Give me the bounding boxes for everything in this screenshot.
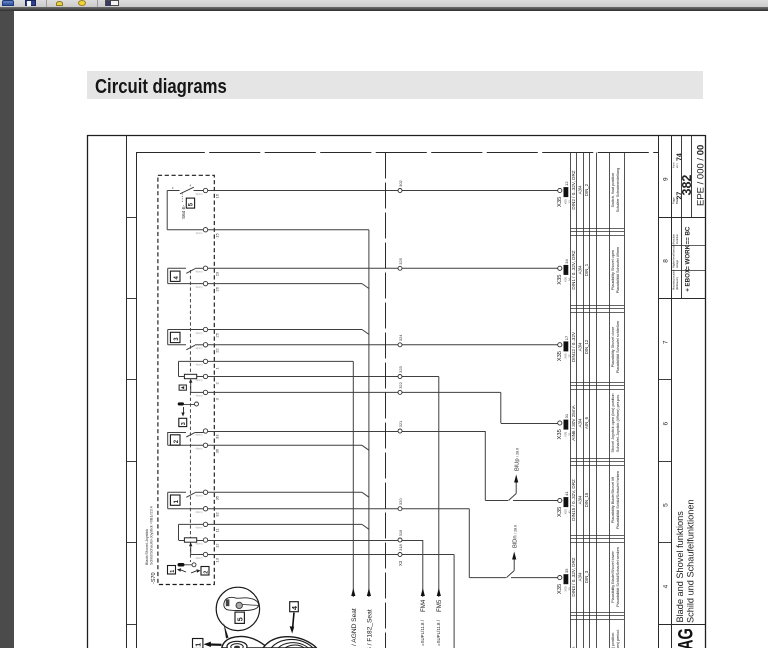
svg-text:3: 3 (181, 422, 187, 425)
svg-text:8: 8 (662, 259, 669, 263)
svg-text:Funktion: Funktion (675, 233, 679, 244)
svg-text:A3/4: A3/4 (577, 572, 582, 581)
svg-text:DIN15 / 0..32V, DRZ: DIN15 / 0..32V, DRZ (571, 479, 576, 521)
svg-text:17: 17 (564, 335, 569, 340)
svg-text:Plausibility Blade/Shovel lift: Plausibility Blade/Shovel lift (611, 476, 615, 523)
svg-text:5: 5 (238, 617, 245, 621)
svg-text:319: 319 (398, 529, 403, 536)
svg-text:DIN1 / 0..32V, DRZ: DIN1 / 0..32V, DRZ (571, 250, 576, 289)
svg-text:A3/4: A3/4 (577, 265, 582, 274)
svg-text:DIN_1: DIN_1 (584, 263, 589, 276)
svg-text:31: 31 (564, 413, 569, 418)
svg-text:AIN6 / 30V 25mA: AIN6 / 30V 25mA (571, 404, 576, 440)
svg-text:4(mm): 4(mm) (196, 332, 203, 335)
svg-text:12: 12 (215, 543, 220, 548)
svg-text:5: 5 (662, 503, 669, 507)
svg-text:4(mm): 4(mm) (196, 527, 203, 530)
svg-text:X3: X3 (398, 560, 403, 566)
svg-text:4(mm): 4(mm) (196, 286, 203, 289)
svg-text:A3/4: A3/4 (577, 185, 582, 194)
svg-text:23: 23 (215, 271, 220, 276)
svg-text:4(mm): 4(mm) (196, 379, 203, 382)
svg-text:324: 324 (398, 334, 403, 341)
svg-text:DIN_15: DIN_15 (584, 492, 589, 507)
svg-text:4(mm): 4(mm) (196, 395, 203, 398)
svg-text:4(mm): 4(mm) (196, 511, 203, 514)
svg-text:= WORK: = WORK (685, 244, 692, 269)
svg-text:4: 4 (662, 584, 669, 588)
svg-text:== BC: == BC (685, 226, 692, 244)
svg-text:1: 1 (215, 366, 220, 369)
svg-text:9: 9 (662, 177, 669, 181)
svg-text:Shovel Joystick open (low) pos: Shovel Joystick open (low) position (611, 393, 615, 452)
svg-text:4(mm): 4(mm) (196, 433, 203, 436)
svg-text:320: 320 (398, 498, 403, 505)
svg-text:2: 2 (204, 571, 210, 574)
svg-text:323: 323 (398, 365, 403, 372)
svg-text:Plausibility Shovel open: Plausibility Shovel open (611, 250, 615, 290)
svg-text:36: 36 (215, 448, 220, 453)
svg-text:35: 35 (564, 568, 569, 573)
svg-text:4: 4 (190, 183, 192, 187)
svg-text:Blade/Shovel-Joystick: Blade/Shovel-Joystick (145, 529, 149, 565)
svg-text:12: 12 (564, 181, 569, 186)
svg-text:25: 25 (215, 332, 220, 337)
svg-text:A3/4: A3/4 (577, 495, 582, 504)
svg-text:1: 1 (196, 643, 203, 647)
svg-text:X35: X35 (557, 584, 563, 594)
svg-text:16: 16 (215, 193, 220, 198)
svg-text:4(mm): 4(mm) (196, 542, 203, 545)
svg-text:7: 7 (662, 340, 669, 344)
svg-text:Schalter Schwimmstellung: Schalter Schwimmstellung (616, 168, 620, 213)
svg-text:AG: AG (674, 628, 697, 648)
svg-text:-S70: -S70 (151, 572, 157, 584)
svg-text:FM4: FM4 (420, 599, 427, 612)
svg-text:A3/4: A3/4 (577, 418, 582, 427)
svg-text:X35: X35 (557, 197, 563, 207)
svg-text:382: 382 (680, 175, 694, 196)
svg-text:DIN_12: DIN_12 (584, 339, 589, 354)
svg-text:DIN2 / 0..32V, DRZ: DIN2 / 0..32V, DRZ (571, 170, 576, 209)
svg-text:Plausibilität Schaufel öffnen: Plausibilität Schaufel öffnen (616, 247, 620, 294)
svg-text:318: 318 (398, 543, 403, 550)
svg-text:74: 74 (676, 153, 683, 161)
svg-text:4(mm): 4(mm) (196, 193, 203, 196)
svg-text:DIN_2: DIN_2 (584, 183, 589, 196)
svg-text:3: 3 (215, 397, 220, 400)
svg-text:Blade and Shovel funktions: Blade and Shovel funktions (675, 511, 685, 623)
svg-text:4(mm): 4(mm) (196, 271, 203, 274)
svg-text:11: 11 (215, 527, 220, 532)
svg-text:Plausibilität Schild/Schaufel: Plausibilität Schild/Schaufel senken (616, 547, 620, 607)
svg-text:3: 3 (172, 186, 174, 190)
svg-text:15: 15 (215, 232, 220, 237)
svg-text:S64 E-: S64 E- (181, 204, 186, 219)
svg-text:X35: X35 (557, 429, 563, 439)
svg-text:41: 41 (564, 491, 569, 496)
svg-text:=SUPL/11.8 /: =SUPL/11.8 / (436, 619, 441, 646)
svg-text:13: 13 (215, 557, 220, 562)
svg-text:4(mm): 4(mm) (196, 232, 203, 235)
svg-text:X35: X35 (557, 351, 563, 361)
svg-text:322: 322 (398, 381, 403, 388)
svg-text:34: 34 (564, 258, 569, 263)
svg-text:(öffnen) period.: (öffnen) period. (616, 629, 620, 648)
svg-text:4(mm): 4(mm) (196, 364, 203, 367)
svg-text:302: 302 (398, 179, 403, 186)
svg-text:A3/4: A3/4 (577, 342, 582, 351)
svg-text:BlDn / 28.0: BlDn / 28.0 (513, 525, 519, 548)
svg-text:AIN_6: AIN_6 (584, 416, 589, 429)
svg-text:Anlage: Anlage (675, 259, 679, 268)
svg-text:6: 6 (662, 422, 669, 426)
svg-text:FM5: FM5 (436, 599, 443, 612)
svg-text:325: 325 (398, 257, 403, 264)
svg-text:Plausibility Blade/Shovel lowe: Plausibility Blade/Shovel lower (611, 551, 615, 603)
svg-text:von: von (675, 163, 679, 168)
svg-text:Plausibilität Schild/Schaufel: Plausibilität Schild/Schaufel heben (616, 471, 620, 529)
svg-text:Plausibility Shovel close: Plausibility Shovel close (611, 327, 615, 368)
svg-text:321: 321 (398, 420, 403, 427)
svg-text:26.5 / F182_Seat: 26.5 / F182_Seat (366, 609, 373, 648)
svg-text:26: 26 (215, 286, 220, 291)
svg-text:=SUPL/11.8 /: =SUPL/11.8 / (420, 619, 425, 646)
svg-text:Schaufel-Joystick (öffnen) per: Schaufel-Joystick (öffnen) per.pos. (616, 394, 620, 452)
svg-text:Switch, float position: Switch, float position (611, 173, 615, 208)
svg-text:6.5 / AGND Seat: 6.5 / AGND Seat (351, 608, 358, 648)
svg-text:35: 35 (215, 495, 220, 500)
svg-text:Schild/Schaufel-Joystick =0B1/: Schild/Schaufel-Joystick =0B1//23.4 (150, 506, 154, 565)
svg-text:22: 22 (215, 348, 220, 353)
svg-text:EPE / 000 / 00: EPE / 000 / 00 (695, 145, 706, 206)
svg-text:2: 2 (215, 382, 220, 385)
svg-text:DIN3 / 0..32V, DRZ: DIN3 / 0..32V, DRZ (571, 557, 576, 596)
svg-text:4(mm): 4(mm) (196, 347, 203, 350)
svg-text:X35: X35 (557, 507, 563, 517)
svg-text:1: 1 (170, 570, 176, 573)
svg-text:(Einbauort): (Einbauort) (675, 277, 679, 290)
svg-text:+ EBOX: + EBOX (685, 268, 692, 292)
svg-text:32: 32 (215, 511, 220, 516)
svg-text:4(mm): 4(mm) (196, 448, 203, 451)
svg-text:BlUp / 28.0: BlUp / 28.0 (515, 448, 521, 471)
svg-text:4(mm): 4(mm) (196, 495, 203, 498)
svg-text:X35: X35 (557, 274, 563, 284)
svg-text:4: 4 (292, 606, 299, 610)
svg-text:DIN12 / 0..32V: DIN12 / 0..32V (571, 331, 576, 362)
svg-text:33: 33 (215, 434, 220, 439)
svg-text:Plausibilität Schaufel schließ: Plausibilität Schaufel schließen (616, 321, 620, 373)
svg-text:Schild und Schaufelfunktionen: Schild und Schaufelfunktionen (686, 499, 696, 623)
svg-text:(low) position: (low) position (611, 633, 615, 648)
svg-text:4(mm): 4(mm) (196, 557, 203, 560)
svg-text:DIN_3: DIN_3 (584, 570, 589, 583)
